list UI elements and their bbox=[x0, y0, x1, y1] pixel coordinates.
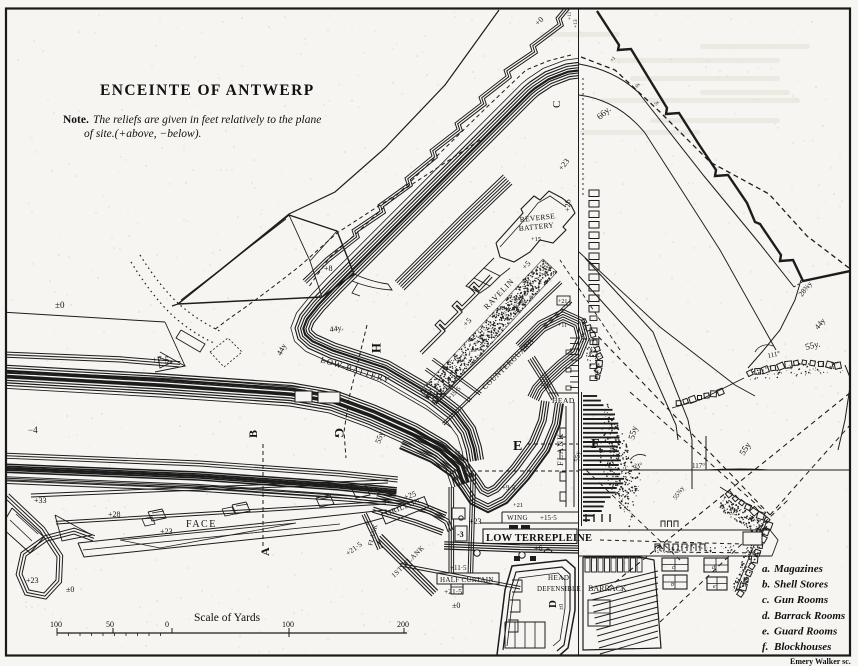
svg-text:LOW TERREPLEINE: LOW TERREPLEINE bbox=[486, 533, 592, 544]
svg-text:+33: +33 bbox=[34, 496, 47, 505]
svg-text:e: e bbox=[713, 584, 716, 590]
svg-text:B: B bbox=[246, 430, 260, 438]
svg-text:+26: +26 bbox=[563, 199, 572, 212]
svg-text:G: G bbox=[332, 428, 347, 438]
svg-text:+7·5: +7·5 bbox=[152, 355, 170, 365]
svg-text:HEAD: HEAD bbox=[548, 574, 569, 582]
svg-text:b.: b. bbox=[762, 579, 770, 591]
svg-text:+13: +13 bbox=[573, 19, 579, 28]
svg-text:+26: +26 bbox=[540, 383, 551, 390]
svg-text:+15·5: +15·5 bbox=[540, 514, 557, 522]
svg-text:Note.: Note. bbox=[63, 114, 89, 126]
svg-text:H: H bbox=[369, 343, 384, 353]
svg-text:+15: +15 bbox=[531, 236, 541, 243]
svg-text:Scale of Yards: Scale of Yards bbox=[194, 612, 261, 624]
svg-text:+9·5: +9·5 bbox=[502, 484, 516, 492]
svg-text:Blockhouses: Blockhouses bbox=[773, 641, 831, 653]
svg-text:E: E bbox=[513, 439, 522, 454]
svg-text:A: A bbox=[258, 547, 272, 556]
svg-text:b: b bbox=[671, 582, 674, 588]
svg-text:Magazines: Magazines bbox=[773, 563, 823, 575]
svg-text:+23: +23 bbox=[160, 527, 173, 536]
svg-text:117°: 117° bbox=[692, 462, 705, 470]
svg-text:±0: ±0 bbox=[66, 585, 74, 594]
svg-text:+28: +28 bbox=[108, 510, 121, 519]
svg-text:Barrack Rooms: Barrack Rooms bbox=[773, 610, 845, 622]
svg-text:+11·5: +11·5 bbox=[450, 564, 467, 572]
svg-text:HEAD: HEAD bbox=[552, 396, 575, 405]
svg-text:+23: +23 bbox=[26, 576, 39, 585]
svg-text:Shell Stores: Shell Stores bbox=[774, 579, 828, 591]
svg-text:DEFENSIBLE: DEFENSIBLE bbox=[537, 585, 581, 593]
svg-text:−4: −4 bbox=[28, 425, 38, 435]
svg-text:±0: ±0 bbox=[559, 604, 565, 610]
svg-text:+11: +11 bbox=[558, 323, 567, 329]
svg-text:d.: d. bbox=[762, 610, 770, 622]
svg-text:+6: +6 bbox=[534, 544, 543, 553]
svg-text:FLANK: FLANK bbox=[555, 433, 565, 466]
svg-text:c: c bbox=[672, 565, 675, 571]
svg-text:The reliefs are given in feet: The reliefs are given in feet relatively… bbox=[93, 114, 321, 126]
svg-text:f.: f. bbox=[762, 641, 768, 653]
svg-text:-3: -3 bbox=[457, 530, 464, 539]
svg-text:+8: +8 bbox=[324, 264, 333, 273]
svg-text:Guard Rooms: Guard Rooms bbox=[774, 625, 837, 637]
svg-text:e.: e. bbox=[762, 625, 770, 637]
svg-text:+23: +23 bbox=[469, 517, 482, 526]
svg-text:Emery Walker sc.: Emery Walker sc. bbox=[790, 657, 851, 666]
svg-text:±0: ±0 bbox=[55, 300, 65, 310]
svg-text:±0: ±0 bbox=[452, 601, 460, 610]
svg-text:F: F bbox=[591, 437, 600, 452]
svg-text:+21: +21 bbox=[513, 502, 523, 509]
svg-text:WING: WING bbox=[507, 514, 528, 522]
svg-text:of site.(+above, −below).: of site.(+above, −below). bbox=[84, 128, 201, 140]
svg-text:a.: a. bbox=[762, 563, 770, 575]
svg-text:50: 50 bbox=[106, 620, 114, 629]
svg-text:BARRACK: BARRACK bbox=[588, 584, 627, 593]
svg-text:100: 100 bbox=[282, 620, 294, 629]
svg-text:ENCEINTE OF ANTWERP: ENCEINTE OF ANTWERP bbox=[100, 82, 315, 99]
svg-text:44y.: 44y. bbox=[329, 323, 344, 334]
svg-text:100: 100 bbox=[50, 620, 62, 629]
svg-text:c.: c. bbox=[762, 594, 770, 606]
svg-text:C: C bbox=[551, 101, 563, 108]
svg-text:+11: +11 bbox=[567, 11, 573, 20]
svg-text:+21: +21 bbox=[558, 299, 567, 305]
svg-text:200: 200 bbox=[397, 620, 409, 629]
svg-text:D: D bbox=[547, 600, 559, 608]
svg-text:+21·5: +21·5 bbox=[444, 587, 462, 596]
svg-text:0: 0 bbox=[165, 620, 169, 629]
svg-text:Gun Rooms: Gun Rooms bbox=[774, 594, 828, 606]
